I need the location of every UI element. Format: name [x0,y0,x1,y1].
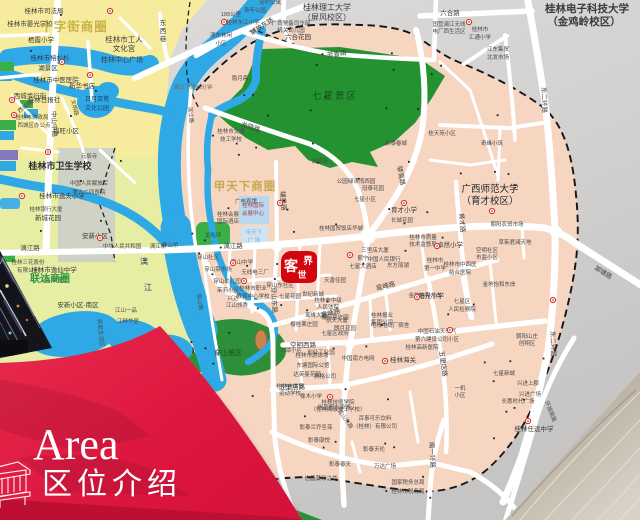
svg-text:新泰春城: 新泰春城 [385,139,408,147]
svg-text:信昌碧水康城: 信昌碧水康城 [317,403,351,411]
svg-text:文化公园: 文化公园 [85,104,109,112]
svg-text:漓: 漓 [140,256,148,266]
svg-text:北发市场: 北发市场 [487,53,510,61]
svg-text:新城花园: 新城花园 [35,213,61,222]
svg-text:桂林市财政局: 桂林市财政局 [15,113,48,121]
svg-text:七星新城: 七星新城 [493,369,516,377]
svg-text:广电宾馆: 广电宾馆 [235,197,258,205]
svg-text:桂林市: 桂林市 [472,25,489,33]
svg-text:金地怡和东岸: 金地怡和东岸 [482,280,516,288]
svg-text:安新小区-南区: 安新小区-南区 [57,300,99,309]
svg-text:穿山桥: 穿山桥 [162,241,179,249]
svg-text:安新小区: 安新小区 [82,231,109,240]
svg-text:宝积公寓: 宝积公寓 [259,0,282,6]
svg-text:桂林市卫生学校: 桂林市卫生学校 [27,160,92,171]
svg-text:技术监督局: 技术监督局 [409,240,437,248]
svg-text:青年公园: 青年公园 [244,6,267,14]
svg-text:桂林日报社: 桂林日报社 [28,95,61,104]
svg-text:空明社区: 空明社区 [476,246,499,254]
svg-text:联达商圈: 联达商圈 [30,272,70,285]
svg-text:广 场: 广 场 [248,236,261,244]
svg-text:桂林理工大学: 桂林理工大学 [303,2,351,12]
svg-text:穿山菜市场: 穿山菜市场 [204,265,232,273]
svg-text:江: 江 [144,283,152,292]
svg-text:甲天下: 甲天下 [246,229,263,236]
svg-text:龙船坪: 龙船坪 [205,231,222,239]
svg-text:彰泰春天: 彰泰春天 [329,460,352,468]
svg-text:世纪新城: 世纪新城 [302,290,325,298]
svg-text:彰泰兰乔圣菲: 彰泰兰乔圣菲 [299,423,333,431]
svg-text:桂林市税务局: 桂林市税务局 [391,487,424,495]
svg-text:运动学校: 运动学校 [279,389,302,397]
svg-text:湖景区: 湖景区 [38,63,58,72]
svg-text:橡木小学: 橡木小学 [300,392,323,400]
svg-text:一机: 一机 [454,384,466,392]
svg-text:教育中心学校: 教育中心学校 [236,292,270,300]
svg-text:日月双塔: 日月双塔 [85,95,109,103]
svg-text:江山领秀: 江山领秀 [226,301,249,309]
svg-text:（育才校区）: （育才校区） [461,195,518,207]
svg-text:冠泰花园: 冠泰花园 [362,184,385,192]
svg-text:长城花园: 长城花园 [391,216,414,224]
svg-text:桂林市工人: 桂林市工人 [105,34,143,44]
svg-text:新华书店: 新华书店 [69,81,96,90]
svg-text:界: 界 [303,256,313,267]
svg-text:栖霞小学: 栖霞小学 [28,35,55,44]
svg-text:市监小区: 市监小区 [476,253,499,261]
svg-text:朗月花园: 朗月花园 [334,324,357,332]
svg-text:桂林市司法局: 桂林市司法局 [25,6,64,15]
svg-text:江畔华居: 江畔华居 [117,317,140,325]
svg-text:穿山社区: 穿山社区 [197,253,220,261]
svg-text:朝阳农贸市场: 朝阳农贸市场 [490,220,524,228]
svg-text:百事可乐饮料: 百事可乐饮料 [358,414,392,422]
svg-text:桂天苑小区: 桂天苑小区 [428,129,456,137]
svg-text:无线电三厂: 无线电三厂 [241,268,269,276]
svg-text:七星小区: 七星小区 [354,195,377,203]
svg-text:Area: Area [33,420,119,469]
svg-text:樱桂果庄园: 樱桂果庄园 [290,320,318,328]
svg-text:东方丽湖: 东方丽湖 [387,261,410,269]
svg-text:桂林市: 桂林市 [427,256,444,264]
svg-text:东: 东 [160,18,167,27]
svg-text:（金鸡岭校区）: （金鸡岭校区） [547,15,621,28]
svg-text:桂林市交通: 桂林市交通 [217,127,245,135]
svg-text:七星花园: 七星花园 [279,292,302,300]
svg-text:巷: 巷 [160,35,167,43]
svg-text:广西师范大学: 广西师范大学 [461,183,518,195]
svg-text:创翔区: 创翔区 [519,339,536,347]
svg-text:三里店大厦: 三里店大厦 [361,246,389,254]
svg-text:兴进广场: 兴进广场 [519,390,542,398]
svg-text:第九二四医院: 第九二四医院 [72,188,106,196]
svg-text:第六建设公司小区: 第六建设公司小区 [415,335,460,343]
svg-text:人民检察院: 人民检察院 [448,305,476,313]
svg-text:有限公司: 有限公司 [17,266,39,274]
svg-text:茉莉小区: 茉莉小区 [217,286,240,294]
svg-text:桂林市质量: 桂林市质量 [409,233,437,241]
svg-text:小区: 小区 [454,391,466,399]
svg-text:桂林会展: 桂林会展 [217,210,240,218]
svg-text:长惠时代广场: 长惠时代广场 [501,397,535,405]
svg-text:公园绿涛湾西园: 公园绿涛湾西园 [337,177,376,185]
svg-text:万达广场: 万达广场 [374,462,397,470]
svg-text:（桂林）有限公司: （桂林）有限公司 [353,422,397,430]
svg-text:达芙曼花园: 达芙曼花园 [293,370,321,378]
svg-text:熙宁: 熙宁 [357,254,369,262]
svg-text:桂林电子科技大学: 桂林电子科技大学 [544,2,629,15]
svg-text:国际酒店: 国际酒店 [217,217,240,225]
svg-text:桂林市职业: 桂林市职业 [239,284,267,292]
svg-text:漓江路: 漓江路 [20,243,40,252]
svg-text:国营漓江无线: 国营漓江无线 [432,20,466,28]
svg-text:七星景区: 七星景区 [312,91,358,102]
svg-text:育才小学: 育才小学 [391,205,418,214]
svg-text:金地怡和东岸: 金地怡和东岸 [408,291,442,299]
svg-text:桂林中心广场: 桂林中心广场 [101,55,143,64]
svg-text:桂林报业: 桂林报业 [371,311,394,319]
svg-text:穿山景区: 穿山景区 [214,348,242,357]
svg-text:西: 西 [160,27,167,35]
svg-text:彰泰天伦: 彰泰天伦 [363,445,386,453]
svg-text:桂林海关: 桂林海关 [390,355,417,364]
svg-text:广西警备司令部: 广西警备司令部 [272,19,311,27]
svg-text:兴进上郡: 兴进上郡 [517,379,540,387]
svg-text:国家税务总局: 国家税务总局 [391,478,424,486]
svg-text:第一中学: 第一中学 [424,264,447,272]
svg-text:七星区: 七星区 [454,297,471,305]
svg-text:漓江路: 漓江路 [223,241,243,250]
svg-text:世: 世 [297,269,306,280]
svg-text:西城区办公点: 西城区办公点 [17,121,51,129]
svg-text:天香佳园: 天香佳园 [324,276,347,284]
svg-text:汇通小学: 汇通小学 [469,33,492,41]
svg-text:草茱君澜天地: 草茱君澜天地 [498,238,532,246]
svg-text:桂林三花股份: 桂林三花股份 [11,258,45,266]
svg-text:元辰寺: 元辰寺 [81,152,98,160]
svg-text:会展中心: 会展中心 [242,209,265,217]
svg-text:桂林高新医院: 桂林高新医院 [405,343,439,351]
svg-text:机关幼儿园: 机关幼儿园 [277,26,305,34]
svg-text:晟景苑: 晟景苑 [312,157,329,165]
svg-text:桂林市中西医: 桂林市中西医 [443,260,477,268]
svg-text:189公里: 189公里 [221,11,242,18]
svg-text:东塘国际公馆: 东塘国际公馆 [296,361,330,369]
svg-text:樱特莱庄园: 樱特莱庄园 [321,313,349,321]
svg-text:清东休闲: 清东休闲 [210,31,233,39]
svg-text:卓然小学: 卓然小学 [437,240,464,249]
svg-text:漓江下聚10分钟: 漓江下聚10分钟 [173,83,213,91]
svg-text:桂林银行大厦: 桂林银行大厦 [29,205,63,213]
svg-text:中国南方电网: 中国南方电网 [341,354,375,362]
svg-text:电厂西生活区: 电厂西生活区 [432,27,466,35]
svg-text:桂林市体育: 桂林市体育 [276,382,304,390]
svg-text:小区: 小区 [215,39,227,47]
svg-text:桂林东江小学: 桂林东江小学 [226,18,260,26]
svg-text:中华人民共和国: 中华人民共和国 [103,242,142,250]
svg-text:中国人民银行: 中国人民银行 [367,255,401,263]
svg-text:技工学校: 技工学校 [220,135,243,143]
svg-text:六合路: 六合路 [440,8,460,17]
svg-text:人民法院: 人民法院 [317,303,340,311]
svg-text:文化宫: 文化宫 [113,43,136,53]
svg-text:十字街商圈: 十字街商圈 [40,19,108,34]
svg-text:江东集贸: 江东集贸 [487,45,510,53]
svg-text:桂林任远中学: 桂林任远中学 [515,424,555,433]
svg-text:江山一品: 江山一品 [115,306,138,314]
svg-text:电线电缆厂宿舍: 电线电缆厂宿舍 [371,321,410,329]
svg-text:隐月斋: 隐月斋 [232,74,249,82]
svg-text:穿山幼儿园: 穿山幼儿园 [213,277,241,285]
svg-text:奇峰小筑: 奇峰小筑 [481,139,504,147]
svg-text:桂林市游泳场: 桂林市游泳场 [295,351,329,359]
svg-text:朝阳山庄: 朝阳山庄 [516,332,539,340]
svg-text:甲天下商圈: 甲天下商圈 [214,179,277,193]
svg-text:彰泰康悦: 彰泰康悦 [308,436,331,444]
svg-text:桂林市中级: 桂林市中级 [314,296,342,304]
svg-text:区位介绍: 区位介绍 [42,468,182,501]
svg-text:结合医院: 结合医院 [449,268,472,276]
svg-text:桂林国贸饭店华城: 桂林国贸饭店华城 [319,224,364,232]
svg-text:信昌莫缘之华: 信昌莫缘之华 [304,474,338,482]
svg-text:中国人民解放军: 中国人民解放军 [70,179,109,187]
